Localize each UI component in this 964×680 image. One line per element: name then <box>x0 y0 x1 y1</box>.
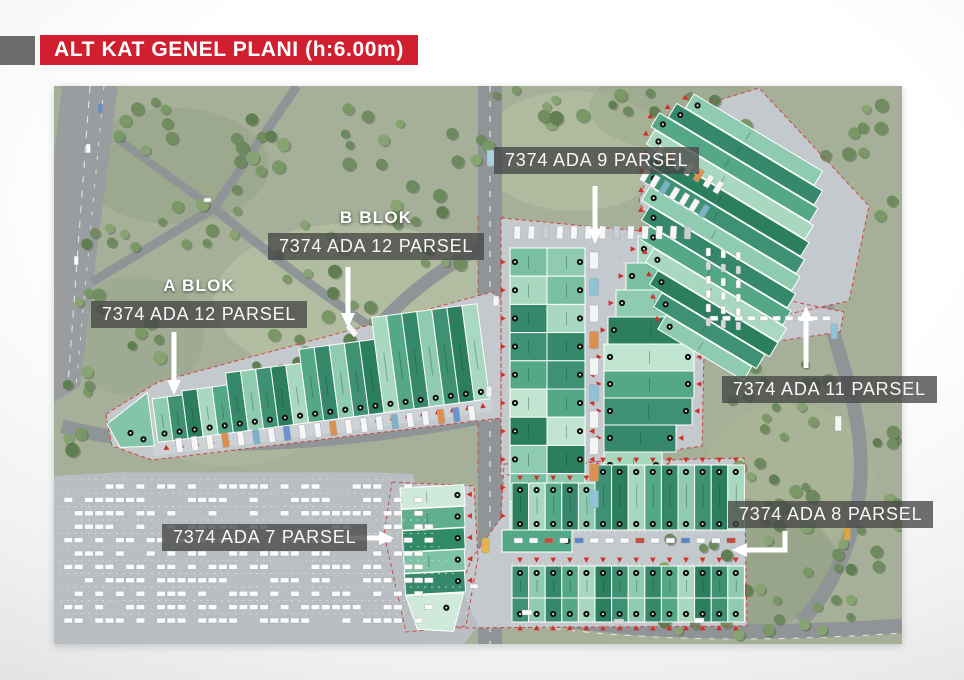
callout-ada11: 7374 ADA 11 PARSEL <box>722 376 937 403</box>
callout-ada8: 7374 ADA 8 PARSEL <box>728 501 933 528</box>
parcel-label-ada7: 7374 ADA 7 PARSEL <box>162 524 367 551</box>
parcel-label-ada9: 7374 ADA 9 PARSEL <box>494 147 699 174</box>
parcel-label-ada8: 7374 ADA 8 PARSEL <box>728 501 933 528</box>
block-title-b: B BLOK <box>340 208 412 228</box>
parcel-label-a-blok: 7374 ADA 12 PARSEL <box>91 301 307 328</box>
page: { "header": { "title": "ALT KAT GENEL PL… <box>0 0 964 680</box>
callout-ada7: 7374 ADA 7 PARSEL <box>162 524 367 551</box>
block-title-a: A BLOK <box>163 276 235 296</box>
parcel-label-ada11: 7374 ADA 11 PARSEL <box>722 376 937 403</box>
site-plan-map: 7374 ADA 9 PARSEL B BLOK 7374 ADA 12 PAR… <box>54 86 902 644</box>
title-bar: ALT KAT GENEL PLANI (h:6.00m) <box>0 35 964 65</box>
callout-ada9: 7374 ADA 9 PARSEL <box>494 147 699 174</box>
callout-a-blok: A BLOK 7374 ADA 12 PARSEL <box>91 276 307 328</box>
parcel-label-b-blok: 7374 ADA 12 PARSEL <box>268 233 484 260</box>
header-accent-block <box>0 36 35 65</box>
aerial-site-rendering <box>54 86 902 644</box>
callout-b-blok: B BLOK 7374 ADA 12 PARSEL <box>268 208 484 260</box>
page-title: ALT KAT GENEL PLANI (h:6.00m) <box>40 35 418 65</box>
